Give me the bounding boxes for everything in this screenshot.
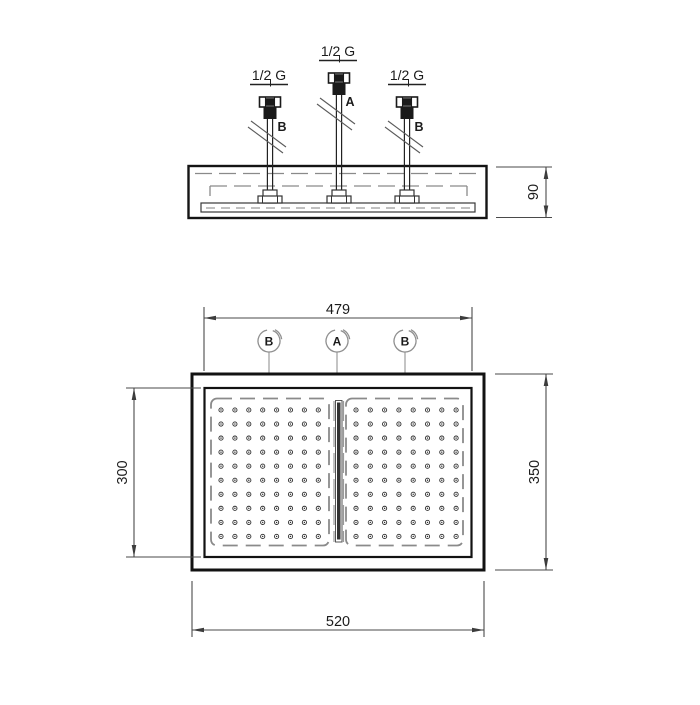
balloon-label: A [333, 335, 342, 349]
dim-face-height-value: 300 [115, 460, 131, 484]
dim-depth: 90 [496, 167, 552, 218]
dim-body-width-value: 520 [326, 614, 350, 630]
dim-body-width: 520 [192, 581, 484, 637]
pipe-nut [329, 73, 350, 95]
dim-face-height: 300 [115, 388, 201, 557]
side-view: 1/2 G B 1/2 G A 1/2 G [189, 43, 553, 218]
port-letter: B [415, 120, 424, 134]
port-letter: A [346, 95, 355, 109]
dim-face-width-value: 479 [326, 302, 350, 318]
thread-label: 1/2 G [321, 43, 355, 59]
waterfall-slot-bar [337, 403, 341, 540]
pipe-nut [260, 97, 281, 119]
technical-drawing-canvas: 1/2 G B 1/2 G A 1/2 G [0, 0, 700, 700]
thread-label: 1/2 G [390, 67, 424, 83]
pipe-nut [397, 97, 418, 119]
dim-body-height: 350 [495, 374, 553, 570]
dim-body-height-value: 350 [527, 460, 543, 484]
balloon-label: B [265, 335, 274, 349]
shower-face [192, 374, 484, 570]
thread-label: 1/2 G [252, 67, 286, 83]
port-letter: B [278, 120, 287, 134]
drawing-sheet: 1/2 G B 1/2 G A 1/2 G [0, 0, 700, 700]
dim-depth-value: 90 [526, 184, 542, 200]
balloon-label: B [401, 335, 410, 349]
plan-view: B A B [115, 302, 553, 637]
